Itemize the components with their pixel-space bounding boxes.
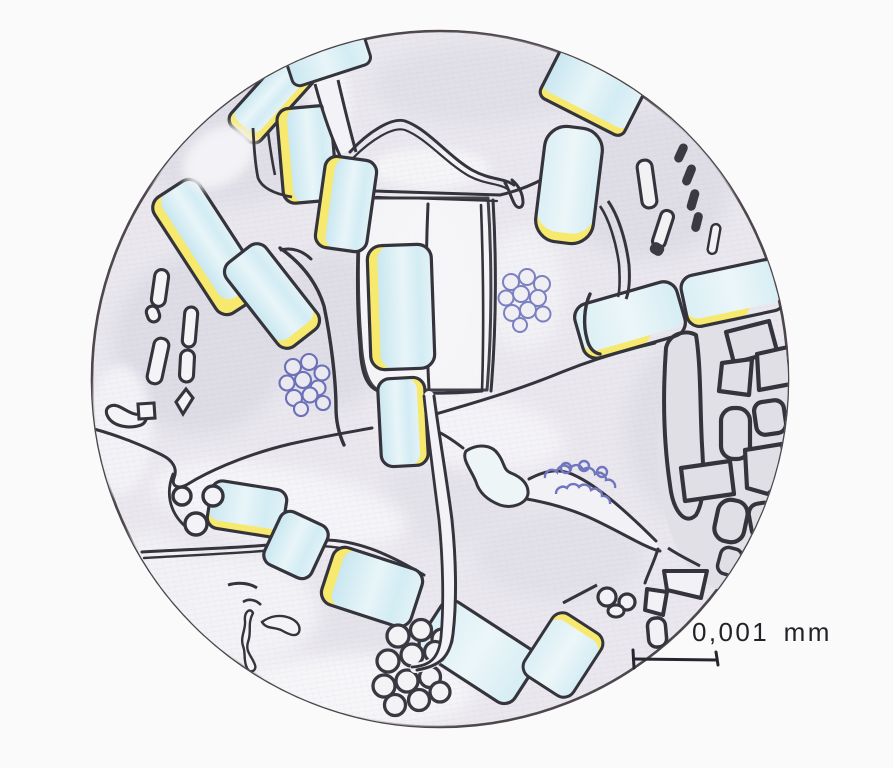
svg-text:0,001 mm: 0,001 mm xyxy=(692,617,832,647)
